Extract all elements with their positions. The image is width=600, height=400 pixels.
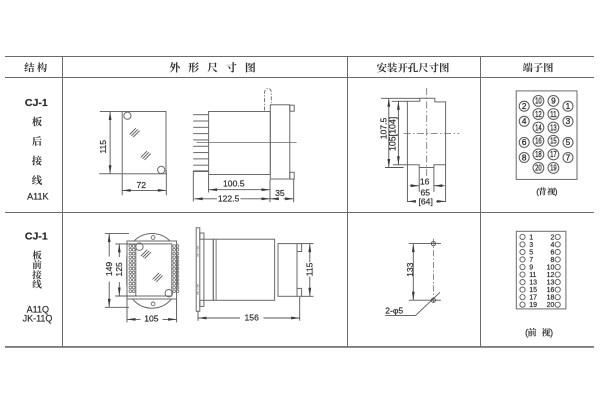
svg-text:35: 35 <box>275 188 285 198</box>
svg-text:16: 16 <box>535 137 542 146</box>
svg-text:20: 20 <box>535 164 542 173</box>
svg-text:8: 8 <box>550 257 554 264</box>
svg-text:10: 10 <box>535 97 542 106</box>
svg-text:13: 13 <box>550 123 557 132</box>
svg-text:3: 3 <box>529 242 533 249</box>
svg-text:11: 11 <box>550 110 557 119</box>
svg-text:19: 19 <box>529 302 537 309</box>
svg-text:CJ-1: CJ-1 <box>25 97 48 109</box>
svg-text:15: 15 <box>529 287 537 294</box>
svg-text:): ) <box>555 186 558 196</box>
svg-text:[64]: [64] <box>419 196 433 206</box>
svg-text:133: 133 <box>405 262 415 277</box>
svg-text:3: 3 <box>566 117 571 126</box>
svg-text:105: 105 <box>144 313 159 323</box>
svg-text:4: 4 <box>550 242 554 249</box>
svg-text:18: 18 <box>547 295 555 302</box>
svg-text:A11K: A11K <box>27 192 48 202</box>
svg-text:10: 10 <box>547 265 555 272</box>
svg-text:13: 13 <box>529 280 537 287</box>
svg-text:115: 115 <box>304 262 314 276</box>
svg-text:): ) <box>550 327 553 337</box>
svg-text:156: 156 <box>245 313 260 323</box>
svg-text:15: 15 <box>550 137 557 146</box>
svg-text:7: 7 <box>566 153 571 162</box>
svg-text:6: 6 <box>522 138 527 147</box>
svg-text:11: 11 <box>529 272 536 279</box>
svg-text:9: 9 <box>551 97 556 106</box>
svg-text:5: 5 <box>529 249 533 256</box>
svg-text:13: 13 <box>547 280 555 287</box>
svg-text:2-φ5: 2-φ5 <box>385 306 403 316</box>
svg-text:8: 8 <box>522 153 527 162</box>
svg-text:149: 149 <box>104 262 114 277</box>
svg-text:12: 12 <box>535 110 542 119</box>
svg-text:100.5: 100.5 <box>223 178 245 188</box>
svg-text:72: 72 <box>137 180 147 190</box>
svg-text:1: 1 <box>529 234 533 241</box>
svg-text:17: 17 <box>550 150 557 159</box>
svg-text:105[104]: 105[104] <box>388 117 398 151</box>
svg-text:16: 16 <box>547 287 555 294</box>
svg-text:(: ( <box>525 327 528 337</box>
svg-text:125: 125 <box>114 262 124 277</box>
svg-text:JK-11Q: JK-11Q <box>23 314 53 324</box>
svg-text:122.5: 122.5 <box>218 194 240 204</box>
svg-text:9: 9 <box>529 265 533 272</box>
svg-text:(: ( <box>536 186 539 196</box>
svg-text:12: 12 <box>547 272 555 279</box>
svg-text:1: 1 <box>566 102 571 111</box>
svg-text:2: 2 <box>550 234 554 241</box>
svg-text:2: 2 <box>522 102 527 111</box>
svg-text:17: 17 <box>529 295 537 302</box>
svg-text:20: 20 <box>547 302 555 309</box>
svg-text:CJ-1: CJ-1 <box>25 231 48 243</box>
svg-text:115: 115 <box>98 140 108 154</box>
svg-text:6: 6 <box>550 249 554 256</box>
svg-text:16: 16 <box>420 176 430 186</box>
svg-text:18: 18 <box>535 150 542 159</box>
svg-text:7: 7 <box>529 257 533 264</box>
svg-text:4: 4 <box>522 117 527 126</box>
svg-text:5: 5 <box>566 138 571 147</box>
svg-text:19: 19 <box>550 164 557 173</box>
svg-text:14: 14 <box>535 123 542 132</box>
